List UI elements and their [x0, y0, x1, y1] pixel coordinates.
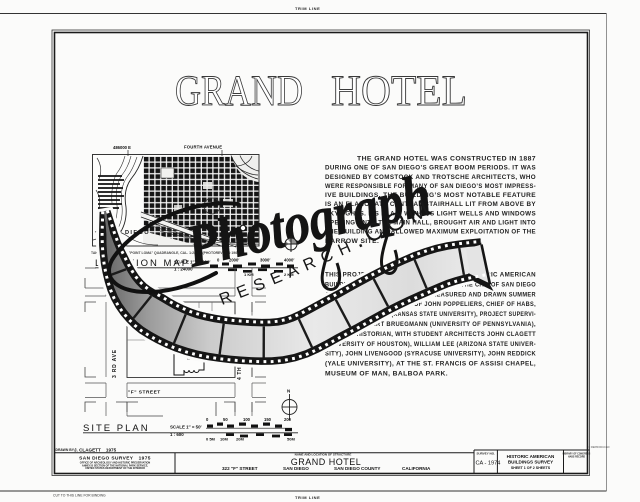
- svg-text:J. CLAGETT 1975: J. CLAGETT 1975: [74, 448, 117, 453]
- svg-text:CALIFORNIA: CALIFORNIA: [402, 466, 431, 471]
- svg-text:NAME AND LOCATION OF STRUCTURE: NAME AND LOCATION OF STRUCTURE: [295, 452, 352, 456]
- svg-text:0: 0: [206, 417, 209, 422]
- svg-text:THE GRAND HOTEL WAS CONSTR: THE GRAND HOTEL WAS CONSTRUCTED IN 1887: [357, 156, 536, 163]
- svg-text:50: 50: [223, 417, 228, 422]
- svg-text:BUILDINGS SURVEY: BUILDINGS SURVEY: [508, 459, 553, 464]
- svg-text:CA - 1974: CA - 1974: [476, 461, 501, 467]
- svg-text:DRAWN BY:: DRAWN BY:: [56, 448, 75, 452]
- svg-text:N: N: [287, 389, 290, 394]
- svg-text:1 : 600: 1 : 600: [170, 432, 184, 437]
- svg-text:(UNIVERSITY OF HOUSTON), WILLI: (UNIVERSITY OF HOUSTON), WILLIAM LEE (AR…: [325, 341, 536, 348]
- svg-text:0 5M: 0 5M: [206, 437, 216, 442]
- svg-text:FOURTH AVENUE: FOURTH AVENUE: [184, 145, 222, 150]
- svg-text:HISTORIC AMERICAN: HISTORIC AMERICAN: [507, 454, 555, 459]
- svg-text:10M: 10M: [220, 437, 228, 442]
- svg-text:HOTEL: HOTEL: [331, 68, 467, 115]
- svg-text:SAN DIEGO SURVEY 1975: SAN DIEGO SURVEY 1975: [79, 456, 151, 462]
- svg-text:UNITED STATES DEPARTMENT OF TH: UNITED STATES DEPARTMENT OF THE INTERIOR: [85, 467, 145, 470]
- svg-text:HABS RECORD: HABS RECORD: [568, 455, 585, 458]
- svg-text:TRIM LINE: TRIM LINE: [295, 495, 320, 500]
- svg-text:322 "F" STREET: 322 "F" STREET: [222, 466, 258, 471]
- svg-text:SHEET 1 OF 2 SHEETS: SHEET 1 OF 2 SHEETS: [511, 466, 551, 470]
- svg-text:50M: 50M: [287, 437, 295, 442]
- svg-text:200: 200: [284, 417, 292, 422]
- svg-text:SURVEY NO.: SURVEY NO.: [477, 452, 496, 456]
- svg-text:LIBRARY OF CONGRESS: LIBRARY OF CONGRESS: [563, 453, 591, 456]
- svg-text:3 RD AVE: 3 RD AVE: [112, 349, 118, 378]
- svg-text:CUT TO THIS LINE FOR BINDING: CUT TO THIS LINE FOR BINDING: [53, 494, 106, 498]
- svg-text:"F" STREET: "F" STREET: [128, 390, 161, 396]
- svg-text:(YALE UNIVERSITY), AT THE: (YALE UNIVERSITY), AT THE ST. FRANCIS OF…: [325, 361, 536, 368]
- svg-text:SITE PLAN: SITE PLAN: [83, 423, 150, 434]
- svg-text:SAN DIEGO: SAN DIEGO: [283, 466, 309, 471]
- svg-text:486000 E: 486000 E: [113, 145, 131, 150]
- svg-text:1 : 24000: 1 : 24000: [174, 267, 193, 272]
- svg-text:100: 100: [243, 417, 251, 422]
- svg-text:150: 150: [264, 417, 272, 422]
- svg-text:IF REPRODUCED: IF REPRODUCED: [588, 445, 610, 449]
- svg-text:SITY), JOHN LIVENGOOD (SYRACUS: SITY), JOHN LIVENGOOD (SYRACUSE UNIVERSI…: [325, 351, 536, 358]
- svg-text:20M: 20M: [236, 437, 244, 442]
- svg-text:GRAND: GRAND: [175, 68, 303, 115]
- svg-text:1 KM: 1 KM: [244, 272, 254, 277]
- svg-text:DURING ONE OF SAN DIEGO’S GREA: DURING ONE OF SAN DIEGO’S GREAT BOOM PER…: [325, 165, 536, 172]
- svg-text:SAN DIEGO COUNTY: SAN DIEGO COUNTY: [334, 466, 380, 471]
- svg-text:MUSEUM OF MAN, BALBOA PARK: MUSEUM OF MAN, BALBOA PARK.: [325, 371, 448, 378]
- svg-text:TRIM LINE: TRIM LINE: [295, 6, 320, 11]
- svg-text:SCALE 1″ = 50′: SCALE 1″ = 50′: [170, 425, 202, 430]
